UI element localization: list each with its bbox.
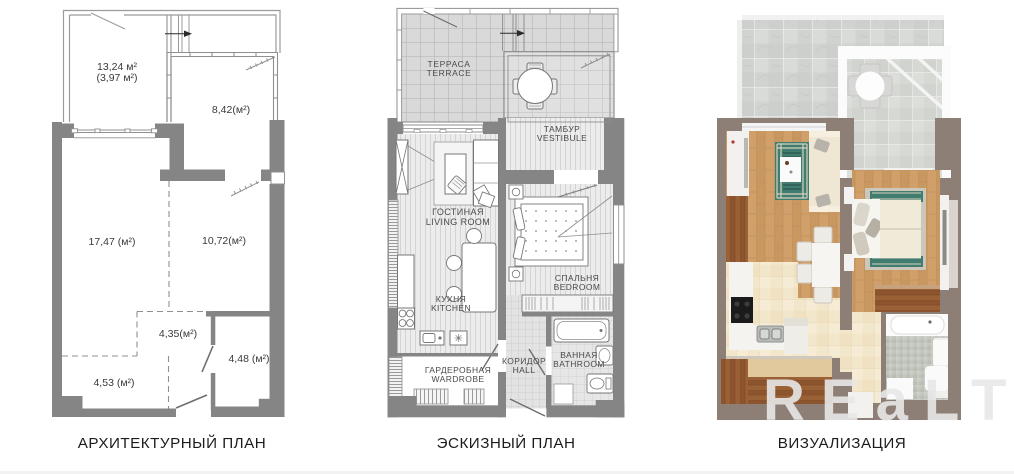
svg-text:✳: ✳: [454, 333, 463, 345]
svg-text:BEDROOM: BEDROOM: [554, 282, 601, 292]
svg-text:(3,97 м²): (3,97 м²): [96, 72, 137, 84]
svg-text:REaLT: REaLT: [763, 368, 1014, 433]
svg-text:4,48 (м²): 4,48 (м²): [228, 353, 269, 365]
svg-text:TERRACE: TERRACE: [427, 68, 472, 78]
svg-text:АРХИТЕКТУРНЫЙ ПЛАН: АРХИТЕКТУРНЫЙ ПЛАН: [78, 434, 266, 452]
svg-text:BATHROOM: BATHROOM: [553, 359, 605, 369]
svg-text:17,47 (м²): 17,47 (м²): [89, 236, 136, 248]
svg-text:10,72(м²): 10,72(м²): [202, 235, 246, 247]
svg-text:LIVING ROOM: LIVING ROOM: [426, 217, 490, 227]
svg-text:ЭСКИЗНЫЙ ПЛАН: ЭСКИЗНЫЙ ПЛАН: [437, 434, 576, 452]
svg-text:8,42(м²): 8,42(м²): [212, 104, 250, 116]
svg-text:WARDROBE: WARDROBE: [432, 374, 485, 384]
svg-text:ВИЗУАЛИЗАЦИЯ: ВИЗУАЛИЗАЦИЯ: [778, 435, 906, 452]
svg-text:4,35(м²): 4,35(м²): [159, 328, 197, 340]
svg-text:VESTIBULE: VESTIBULE: [537, 133, 587, 143]
svg-text:KITCHEN: KITCHEN: [431, 303, 471, 313]
svg-text:HALL: HALL: [513, 365, 536, 375]
svg-text:ГОСТИНАЯ: ГОСТИНАЯ: [432, 207, 484, 217]
svg-text:4,53 (м²): 4,53 (м²): [93, 377, 134, 389]
